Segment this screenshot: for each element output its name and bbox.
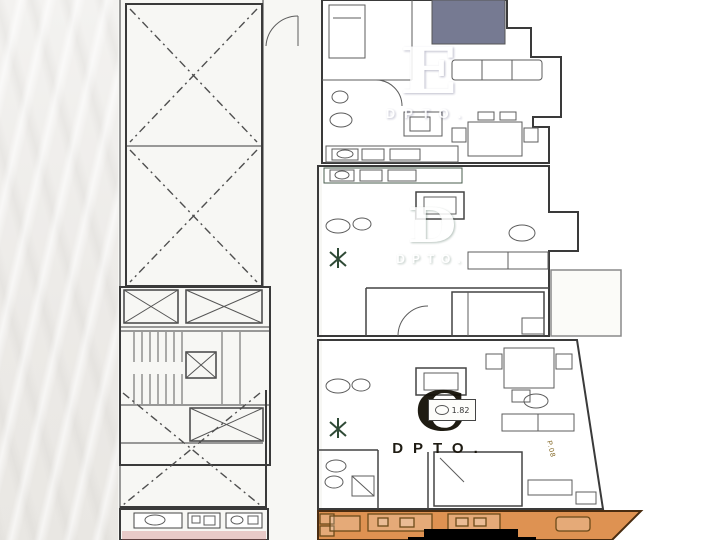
toilet — [326, 460, 346, 472]
kitchenette-zone — [120, 509, 268, 540]
bed — [329, 5, 365, 58]
sink-unit-dimension: 1.82 — [452, 406, 470, 415]
sink-unit-box: 1.82 — [428, 399, 476, 421]
stool — [524, 394, 548, 408]
toilet — [352, 379, 370, 391]
chair — [556, 354, 572, 369]
dark-roof-block — [432, 0, 505, 44]
floor-plan-drawing — [0, 0, 720, 540]
door-swing-arc — [398, 306, 428, 336]
bench — [528, 480, 572, 495]
tv-unit — [416, 192, 464, 219]
plant — [330, 248, 346, 268]
floor-plan-canvas: E DPTO. D DPTO. C DPTO. 1.82 P.08 — [0, 0, 720, 540]
bed — [434, 452, 522, 506]
sink — [330, 113, 352, 127]
stool — [509, 225, 535, 241]
chair — [486, 354, 502, 369]
chair — [478, 112, 494, 120]
chair — [500, 112, 516, 120]
sink-oval-icon — [435, 405, 449, 415]
terrace-room — [551, 270, 621, 336]
toilet — [353, 218, 371, 230]
toilet — [332, 91, 348, 103]
plant — [330, 418, 346, 438]
dining-table — [468, 122, 522, 156]
sink — [326, 219, 350, 233]
dining-table — [504, 348, 554, 388]
bed — [452, 292, 544, 336]
apartment-d-zone — [318, 166, 578, 336]
chair — [524, 128, 538, 142]
chair — [452, 128, 466, 142]
apartment-b-zone — [318, 511, 641, 540]
sink — [325, 476, 343, 488]
apartment-c-zone — [318, 340, 603, 509]
side-table — [522, 318, 544, 334]
sofa — [452, 60, 542, 80]
plan-background — [118, 0, 322, 540]
apartment-e-zone — [322, 0, 561, 163]
sink — [326, 379, 350, 393]
